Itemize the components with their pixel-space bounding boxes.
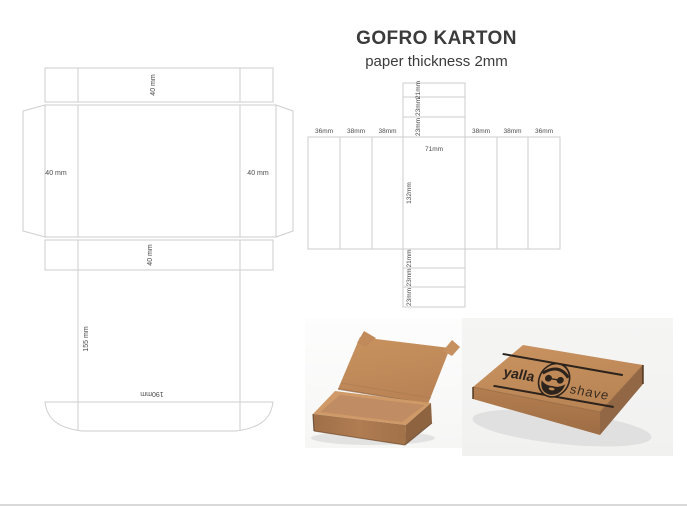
dim-center-width: 71mm <box>425 146 443 153</box>
top-cell-outline <box>403 83 465 97</box>
lid-left-tab-outline <box>23 105 45 237</box>
lid-right-tab-outline <box>276 105 293 237</box>
dim-bottom-cell-2: 23mm <box>406 268 413 286</box>
dim-panel-height: 155 mm <box>83 326 90 351</box>
lid-top-flap-outline <box>45 68 273 102</box>
lid-body-panel-outline <box>78 105 240 237</box>
closed-box-illustration: yalla shave <box>462 318 673 456</box>
top-cell-outline <box>403 97 465 117</box>
render-open-box <box>305 319 462 448</box>
dim-top-flap: 40 mm <box>150 74 157 96</box>
dim-col-7: 36mm <box>535 128 553 135</box>
render-closed-box: yalla shave <box>462 318 673 456</box>
dim-col-5: 38mm <box>472 128 490 135</box>
lid-bottom-flap-outline <box>45 240 273 270</box>
design-proof-page: GOFRO KARTON paper thickness 2mm 40 mm 4… <box>0 0 687 506</box>
dim-top-cell-3: 23mm <box>415 118 422 136</box>
dim-col-2: 38mm <box>347 128 365 135</box>
dim-center-height: 132mm <box>406 182 413 204</box>
dim-bottom-flap: 40 mm <box>147 244 154 266</box>
dim-right-flap: 40 mm <box>247 170 269 177</box>
lid-tuck-tab-outline <box>45 402 273 431</box>
diecut-body-template: 21mm 23mm 23mm 36mm 38mm 38mm 38mm 38mm … <box>308 81 560 307</box>
diecut-lid-template: 40 mm 40 mm 40 mm 40 mm 155 mm 190mm <box>23 68 293 431</box>
lid-front-panel-outline <box>78 270 240 402</box>
dim-left-flap: 40 mm <box>45 170 67 177</box>
dim-col-1: 36mm <box>315 128 333 135</box>
body-outline <box>308 137 560 249</box>
dim-bottom-cell-1: 21mm <box>406 249 413 267</box>
dim-top-cell-1: 21mm <box>415 81 422 99</box>
open-box-illustration <box>305 319 462 448</box>
dim-top-cell-2: 23mm <box>415 98 422 116</box>
dim-bottom-cell-3: 23mm <box>406 288 413 306</box>
dim-col-6: 38mm <box>503 128 521 135</box>
dim-panel-width: 190mm <box>140 390 164 397</box>
dim-col-3: 38mm <box>378 128 396 135</box>
top-cell-outline <box>403 117 465 137</box>
